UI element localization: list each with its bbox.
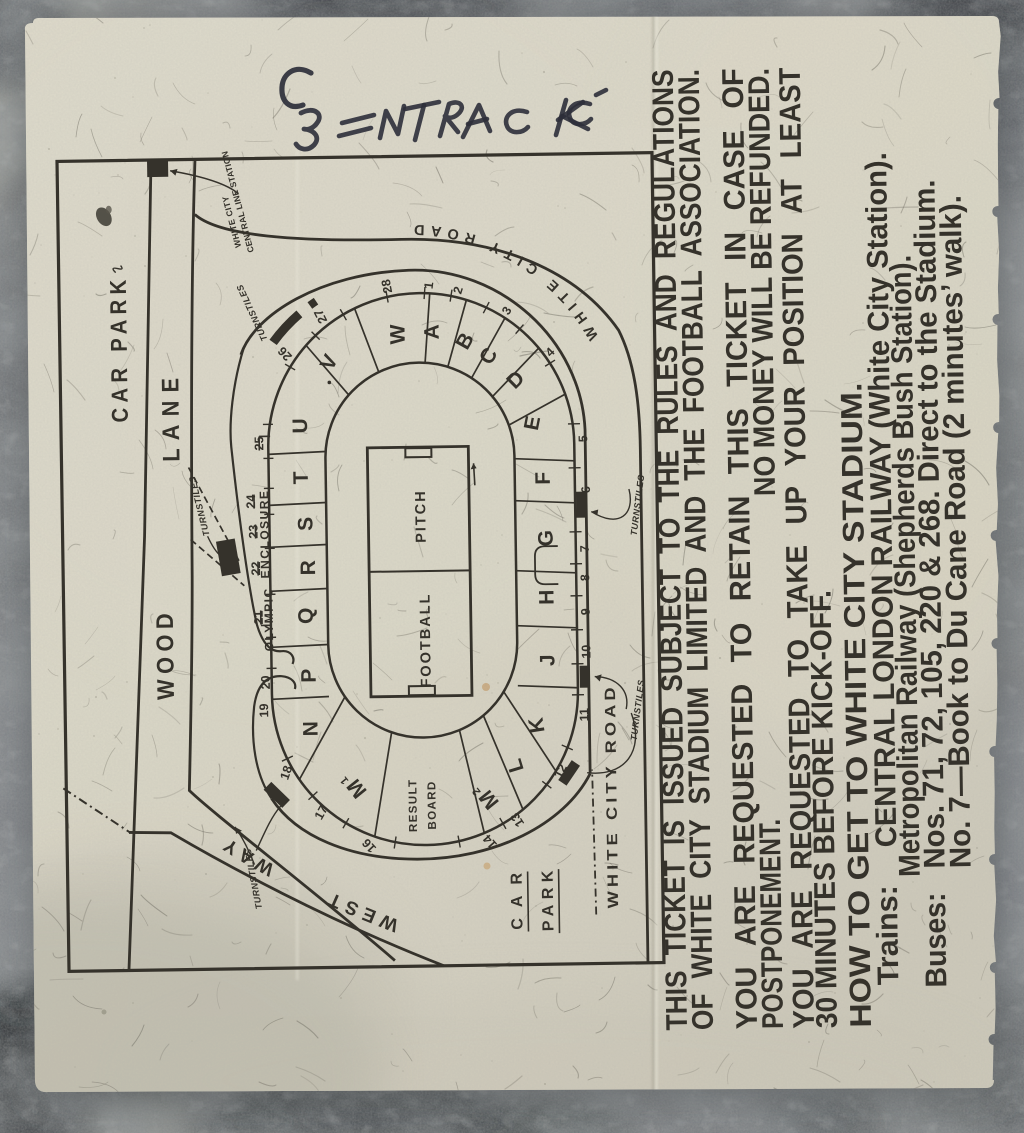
svg-text:CAR: CAR: [508, 862, 526, 930]
svg-text:PITCH: PITCH: [413, 489, 430, 543]
svg-text:J: J: [536, 654, 559, 666]
svg-text:OLYMPIC: OLYMPIC: [261, 587, 276, 651]
svg-text:19: 19: [257, 703, 271, 717]
svg-text:G: G: [535, 530, 558, 547]
svg-text:ENCLOSURE: ENCLOSURE: [257, 489, 272, 578]
svg-text:28: 28: [379, 278, 395, 294]
svg-text:WHITE CITY ROAD: WHITE CITY ROAD: [602, 683, 622, 908]
svg-text:Q: Q: [295, 607, 318, 624]
svg-text:30 MINUTES BEFORE KICK-OFF.: 30 MINUTES BEFORE KICK-OFF.: [804, 590, 843, 1028]
svg-text:T: T: [290, 471, 313, 484]
svg-text:R: R: [297, 560, 320, 576]
svg-text:N: N: [299, 721, 322, 737]
svg-text:LANE: LANE: [157, 370, 185, 462]
svg-text:WOOD: WOOD: [152, 608, 180, 700]
svg-text:RESULT: RESULT: [407, 778, 420, 832]
svg-text:F: F: [532, 472, 555, 485]
svg-text:10: 10: [579, 645, 593, 659]
svg-text:PARK: PARK: [540, 865, 558, 931]
svg-text:11: 11: [577, 708, 591, 721]
svg-text:BOARD: BOARD: [426, 780, 439, 829]
svg-text:W: W: [386, 324, 409, 344]
svg-text:U: U: [289, 418, 312, 434]
svg-text:CAR PARK: CAR PARK: [105, 274, 133, 422]
svg-text:P: P: [298, 669, 321, 683]
svg-text:H: H: [535, 589, 558, 605]
svg-text:8: 8: [578, 574, 592, 581]
svg-text:S: S: [294, 517, 317, 531]
svg-text:Trains:: Trains:: [871, 885, 905, 985]
svg-text:20: 20: [259, 675, 273, 689]
svg-text:9: 9: [579, 608, 593, 615]
svg-text:Buses:: Buses:: [919, 892, 953, 987]
svg-text:FOOTBALL: FOOTBALL: [417, 592, 434, 687]
svg-text:5: 5: [576, 435, 590, 442]
svg-text:A: A: [420, 324, 443, 340]
svg-text:7: 7: [578, 545, 592, 552]
